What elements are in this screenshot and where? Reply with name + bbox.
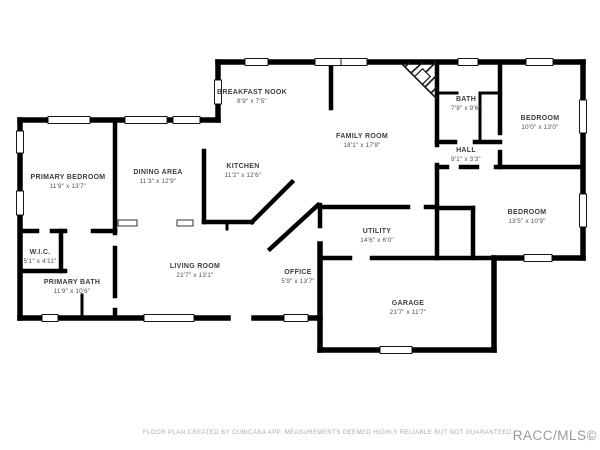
room-label-primary-bath: PRIMARY BATH 11'9" x 10'6": [44, 279, 100, 295]
room-label-breakfast-nook: BREAKFAST NOOK 8'9" x 7'5": [217, 89, 287, 105]
svg-text:KITCHEN: KITCHEN: [226, 163, 259, 170]
svg-text:BATH: BATH: [456, 96, 476, 103]
svg-text:DINING AREA: DINING AREA: [133, 169, 182, 176]
room-label-utility: UTILITY 14'6" x 6'0": [360, 228, 393, 244]
svg-text:21'7" x 11'7": 21'7" x 11'7": [390, 309, 427, 316]
svg-text:11'9" x 10'6": 11'9" x 10'6": [54, 288, 91, 295]
room-label-office: OFFICE 5'9" x 13'7": [281, 269, 314, 285]
room-label-wic: W.I.C. 5'1" x 4'11": [24, 249, 57, 265]
svg-text:PRIMARY BEDROOM: PRIMARY BEDROOM: [31, 174, 106, 181]
room-label-hall: HALL 8'1" x 3'3": [451, 147, 481, 163]
svg-text:W.I.C.: W.I.C.: [30, 249, 51, 256]
svg-text:10'0" x 13'0": 10'0" x 13'0": [521, 124, 558, 131]
svg-text:13'5" x 10'9": 13'5" x 10'9": [508, 218, 545, 225]
mls-brand-logo: RACC/MLS©: [513, 428, 597, 443]
room-label-garage: GARAGE 21'7" x 11'7": [390, 300, 427, 316]
svg-text:BEDROOM: BEDROOM: [521, 115, 560, 122]
floorplan-image: PRIMARY BEDROOM 11'9" x 13'7" W.I.C. 5'1…: [0, 0, 600, 450]
room-label-dining-area: DINING AREA 11'3" x 12'9": [133, 169, 182, 185]
room-label-primary-bedroom: PRIMARY BEDROOM 11'9" x 13'7": [31, 174, 106, 190]
svg-text:UTILITY: UTILITY: [363, 228, 392, 235]
svg-text:22'7" x 13'1": 22'7" x 13'1": [176, 272, 213, 279]
svg-text:GARAGE: GARAGE: [392, 300, 425, 307]
svg-text:14'6" x 6'0": 14'6" x 6'0": [360, 237, 393, 244]
svg-text:BREAKFAST NOOK: BREAKFAST NOOK: [217, 89, 287, 96]
corner-stairs-icon: [401, 62, 437, 99]
svg-text:11'9" x 13'7": 11'9" x 13'7": [50, 183, 87, 190]
room-label-bath: BATH 7'9" x 9'6": [451, 96, 481, 112]
svg-text:HALL: HALL: [456, 147, 476, 154]
room-label-family-room: FAMILY ROOM 18'1" x 17'9": [336, 133, 388, 149]
room-label-kitchen: KITCHEN 11'2" x 12'6": [225, 163, 262, 179]
svg-text:8'9" x 7'5": 8'9" x 7'5": [237, 98, 267, 105]
svg-text:11'2" x 12'6": 11'2" x 12'6": [225, 172, 262, 179]
interior-walls: [20, 62, 583, 350]
svg-text:LIVING ROOM: LIVING ROOM: [170, 263, 220, 270]
svg-text:18'1" x 17'9": 18'1" x 17'9": [343, 142, 380, 149]
svg-text:5'1" x 4'11": 5'1" x 4'11": [24, 258, 57, 265]
svg-text:11'3" x 12'9": 11'3" x 12'9": [140, 178, 177, 185]
svg-text:PRIMARY BATH: PRIMARY BATH: [44, 279, 100, 286]
svg-text:8'1" x 3'3": 8'1" x 3'3": [451, 156, 481, 163]
room-label-living-room: LIVING ROOM 22'7" x 13'1": [170, 263, 220, 279]
svg-text:5'9" x 13'7": 5'9" x 13'7": [281, 278, 314, 285]
footer-disclaimer: FLOOR PLAN CREATED BY CUBICASA APP. MEAS…: [143, 430, 514, 436]
svg-text:7'9" x 9'6": 7'9" x 9'6": [451, 105, 481, 112]
room-label-bedroom-top-right: BEDROOM 10'0" x 13'0": [521, 115, 560, 131]
svg-text:OFFICE: OFFICE: [284, 269, 311, 276]
room-label-bedroom-bottom-right: BEDROOM 13'5" x 10'9": [508, 209, 547, 225]
svg-text:FAMILY ROOM: FAMILY ROOM: [336, 133, 388, 140]
svg-text:BEDROOM: BEDROOM: [508, 209, 547, 216]
